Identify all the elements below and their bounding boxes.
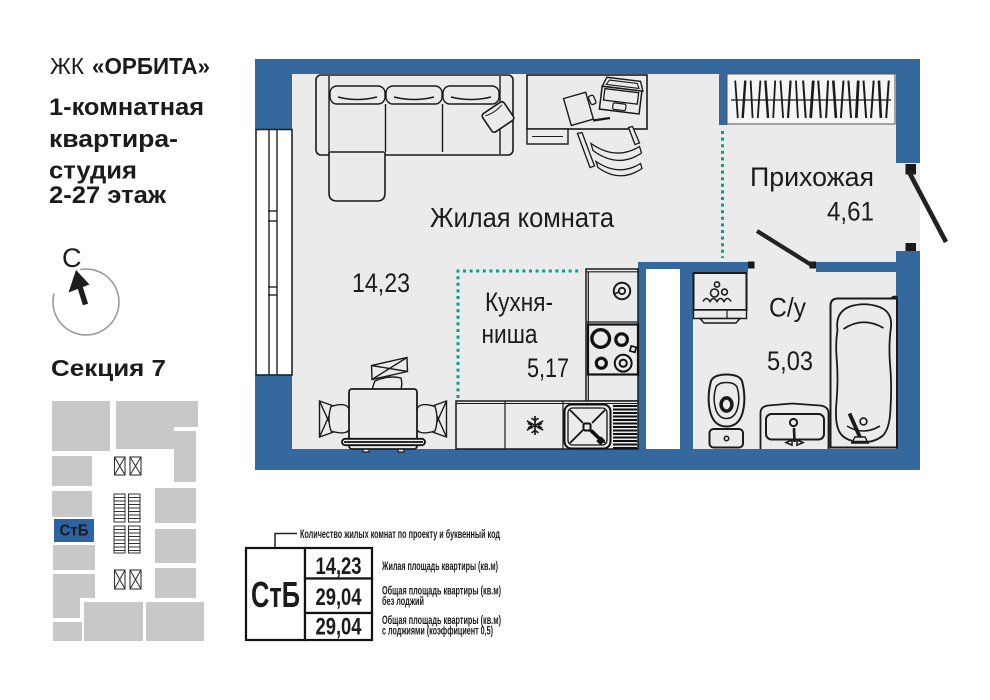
svg-text:ниша: ниша	[482, 319, 539, 349]
svg-text:Секция 7: Секция 7	[51, 355, 166, 381]
svg-text:С/у: С/у	[769, 293, 806, 323]
svg-text:квартира-: квартира-	[49, 126, 178, 153]
svg-text:5,03: 5,03	[767, 346, 813, 376]
svg-text:Жилая комната: Жилая комната	[430, 202, 614, 233]
svg-text:Кухня-: Кухня-	[485, 287, 553, 317]
svg-text:студия: студия	[49, 158, 137, 185]
svg-text:2-27 этаж: 2-27 этаж	[49, 182, 167, 209]
svg-text:29,04: 29,04	[316, 584, 362, 611]
svg-text:«ОРБИТА»: «ОРБИТА»	[92, 53, 210, 79]
svg-text:29,04: 29,04	[316, 614, 362, 641]
svg-text:1-комнатная: 1-комнатная	[49, 94, 204, 121]
svg-text:Прихожая: Прихожая	[750, 162, 874, 192]
svg-text:Количество жилых комнат по про: Количество жилых комнат по проекту и бук…	[300, 527, 500, 541]
svg-text:14,23: 14,23	[316, 553, 362, 580]
svg-text:4,61: 4,61	[827, 197, 874, 227]
svg-text:Жилая площадь квартиры (кв.м): Жилая площадь квартиры (кв.м)	[381, 559, 498, 573]
svg-text:СтБ: СтБ	[251, 574, 300, 615]
svg-text:без лоджий: без лоджий	[382, 594, 424, 608]
svg-text:С: С	[62, 243, 82, 273]
svg-text:СтБ: СтБ	[60, 523, 89, 540]
svg-text:5,17: 5,17	[527, 353, 569, 383]
svg-text:с лоджиями (коэффициент 0,5): с лоджиями (коэффициент 0,5)	[382, 624, 493, 638]
svg-text:14,23: 14,23	[352, 268, 410, 298]
svg-text:ЖК: ЖК	[50, 53, 84, 79]
